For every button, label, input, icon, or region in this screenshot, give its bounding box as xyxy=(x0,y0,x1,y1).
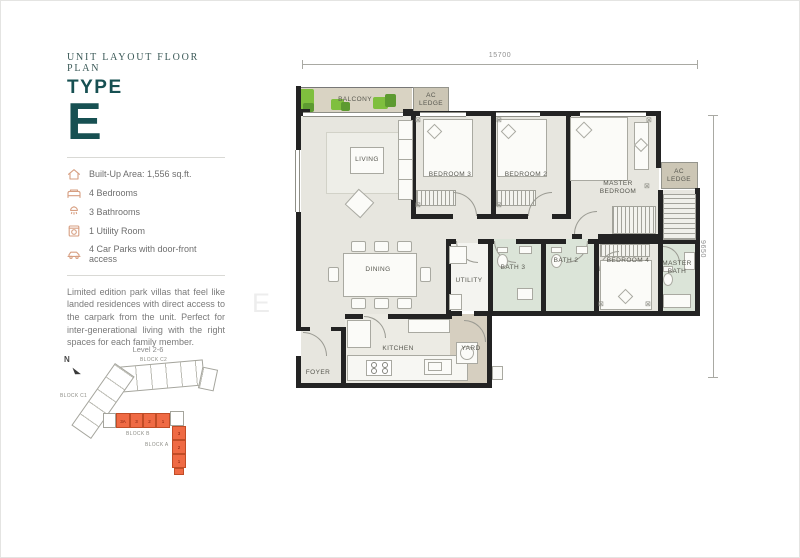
feature-text: 4 Car Parks with door-front access xyxy=(89,244,225,264)
wall xyxy=(516,239,566,244)
wall xyxy=(296,383,492,388)
block-c1-label: BLOCK C1 xyxy=(60,393,87,399)
type-letter: E xyxy=(67,100,225,146)
north-label: N xyxy=(64,355,70,364)
block-c2-label: BLOCK C2 xyxy=(140,357,167,363)
dining-chair xyxy=(397,298,412,309)
plant xyxy=(385,94,396,107)
ac-unit-mark: ⊠ xyxy=(415,117,421,124)
window xyxy=(295,150,300,212)
wall xyxy=(411,214,453,219)
room-label-ac-ledge-top: AC LEDGE xyxy=(416,92,446,107)
sofa xyxy=(398,120,413,200)
feature-utility: 1 Utility Room xyxy=(67,225,225,237)
dining-table xyxy=(343,253,417,297)
ac-unit-mark: ⊠ xyxy=(645,301,651,308)
fridge xyxy=(347,320,371,348)
wall xyxy=(446,311,462,316)
block-b-unit: 3 xyxy=(130,413,143,428)
yard-step xyxy=(492,366,503,380)
balcony-sliding-door xyxy=(303,112,403,117)
feature-text: Built-Up Area: 1,556 sq.ft. xyxy=(89,169,192,179)
description: Limited edition park villas that feel li… xyxy=(67,286,225,349)
room-label-master-bath: MASTER BATH xyxy=(656,260,698,275)
room-label-balcony: BALCONY xyxy=(330,96,380,104)
wall xyxy=(499,214,528,219)
balcony-rail xyxy=(299,87,413,88)
utility-cabinet xyxy=(449,294,462,310)
block-a-unit: 2 xyxy=(172,440,186,454)
wall xyxy=(403,109,413,116)
room-label-kitchen: KITCHEN xyxy=(378,345,418,353)
divider xyxy=(67,157,225,158)
kitchen-sink-basin xyxy=(428,362,442,371)
wall xyxy=(552,214,571,219)
wall xyxy=(477,214,499,219)
dining-chair xyxy=(374,298,389,309)
room-label-bedroom2: BEDROOM 2 xyxy=(498,171,554,179)
ac-unit-mark: ⊠ xyxy=(415,202,421,209)
wall xyxy=(345,314,363,319)
bed-icon xyxy=(67,187,81,199)
wall xyxy=(296,212,301,330)
room-label-master-bedroom: MASTER BEDROOM xyxy=(592,180,644,195)
room-label-yard: YARD xyxy=(456,345,486,353)
dining-chair xyxy=(351,298,366,309)
dimension-tick xyxy=(302,60,303,69)
shaft-ladder xyxy=(663,194,696,240)
bath-sink xyxy=(576,246,588,254)
toilet-tank xyxy=(551,247,562,253)
level-label: Level 2-6 xyxy=(98,345,198,354)
room-label-bath3: BATH 3 xyxy=(492,264,534,272)
dining-chair xyxy=(374,241,389,252)
ac-unit-mark: ⊠ xyxy=(598,301,604,308)
dimension-tick xyxy=(708,377,718,378)
toilet-tank xyxy=(497,247,508,253)
wall xyxy=(572,234,582,239)
stove-burner xyxy=(382,368,388,374)
wall xyxy=(488,239,493,316)
ac-unit-mark: ⊠ xyxy=(496,117,502,124)
wardrobe-hatch xyxy=(416,190,456,206)
room-label-bedroom3: BEDROOM 3 xyxy=(424,171,476,179)
shower xyxy=(663,294,691,308)
room-label-bath2: BATH 2 xyxy=(545,257,587,265)
dining-chair xyxy=(328,267,339,282)
block-b-end-unit xyxy=(103,413,116,428)
ac-unit-mark: ⊠ xyxy=(646,117,652,124)
utility-washer xyxy=(449,246,467,264)
ac-unit-mark: ⊠ xyxy=(496,202,502,209)
compass-icon xyxy=(68,363,85,384)
bath-sink xyxy=(519,246,532,254)
room-label-utility: UTILITY xyxy=(452,277,486,285)
room-label-bedroom4: BEDROOM 4 xyxy=(600,257,656,265)
dining-chair xyxy=(420,267,431,282)
feature-list: Built-Up Area: 1,556 sq.ft. 4 Bedrooms 3… xyxy=(67,168,225,264)
room-label-ac-ledge-right: AC LEDGE xyxy=(664,168,694,183)
block-a-unit: 3 xyxy=(172,426,186,440)
floor-plan-page: UNIT LAYOUT FLOOR PLAN TYPE E Built-Up A… xyxy=(0,0,800,558)
wall xyxy=(487,311,700,316)
block-a-unit-part xyxy=(174,468,184,475)
dimension-right-label: 9650 xyxy=(699,240,706,258)
feature-bathrooms: 3 Bathrooms xyxy=(67,206,225,218)
dimension-line-right xyxy=(713,115,714,378)
stove-burner xyxy=(371,368,377,374)
wall xyxy=(446,239,456,244)
feature-text: 3 Bathrooms xyxy=(89,207,140,217)
window xyxy=(420,112,466,117)
block-b-unit: 3A xyxy=(116,413,130,428)
block-b-unit: 2 xyxy=(143,413,156,428)
block-a-label: BLOCK A xyxy=(145,442,169,448)
page-title: UNIT LAYOUT FLOOR PLAN xyxy=(67,52,225,74)
dining-chair xyxy=(351,241,366,252)
ac-unit-mark: ⊠ xyxy=(644,183,650,190)
divider xyxy=(67,275,225,276)
bath-sink xyxy=(517,288,533,300)
wall xyxy=(341,327,346,388)
feature-bedrooms: 4 Bedrooms xyxy=(67,187,225,199)
feature-text: 4 Bedrooms xyxy=(89,188,138,198)
kitchen-counter xyxy=(408,319,450,333)
feature-carparks: 4 Car Parks with door-front access xyxy=(67,244,225,264)
wall xyxy=(656,158,661,168)
info-panel: UNIT LAYOUT FLOOR PLAN TYPE E Built-Up A… xyxy=(67,52,225,349)
wardrobe-hatch xyxy=(612,206,656,234)
wall xyxy=(478,239,494,244)
dimension-top-label: 15700 xyxy=(455,52,545,59)
block-a-unit: 1 xyxy=(172,454,186,468)
feature-text: 1 Utility Room xyxy=(89,226,145,236)
block-b-unit: 1 xyxy=(156,413,170,428)
room-label-living: LIVING xyxy=(350,156,384,164)
dimension-tick xyxy=(697,60,698,69)
dimension-line-top xyxy=(302,64,698,65)
room-label-dining: DINING xyxy=(358,266,398,274)
washer-icon xyxy=(67,225,81,237)
feature-built-up: Built-Up Area: 1,556 sq.ft. xyxy=(67,168,225,180)
block-b-label: BLOCK B xyxy=(126,431,150,437)
stove xyxy=(366,360,392,376)
block-c2-wing xyxy=(198,367,218,392)
wall xyxy=(474,311,488,316)
site-map: Level 2-6 N BLOCK C2 BLOCK C1 3A 3 2 1 B… xyxy=(40,342,250,494)
window xyxy=(496,112,540,117)
corner-unit xyxy=(170,411,184,426)
wall xyxy=(296,110,301,150)
room-label-foyer: FOYER xyxy=(300,369,336,377)
car-icon xyxy=(67,248,81,260)
dining-chair xyxy=(397,241,412,252)
wall xyxy=(331,327,341,331)
home-icon xyxy=(67,168,81,180)
wall xyxy=(541,239,546,316)
shower-icon xyxy=(67,206,81,218)
dimension-tick xyxy=(708,115,718,116)
wall xyxy=(296,327,310,331)
